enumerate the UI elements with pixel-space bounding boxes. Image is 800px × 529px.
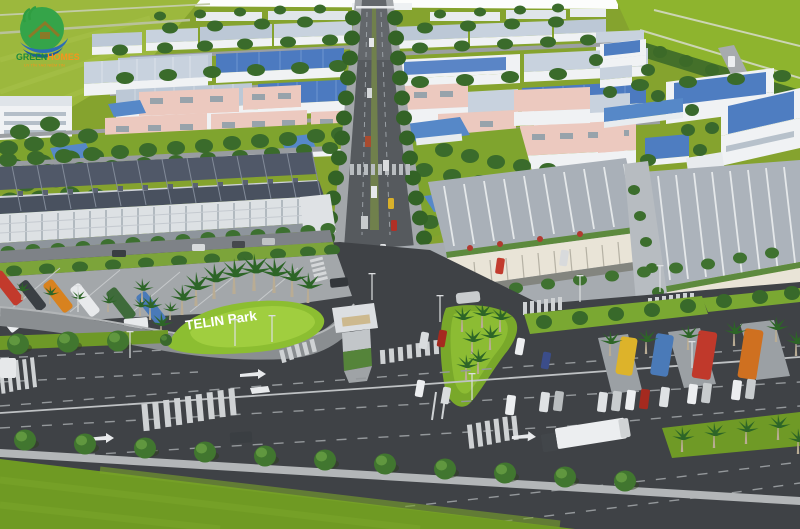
svg-text:GREENHOMES: GREENHOMES <box>16 52 80 62</box>
svg-text:UY TÍN TẠO NIỀM TIN: UY TÍN TẠO NIỀM TIN <box>24 63 65 68</box>
